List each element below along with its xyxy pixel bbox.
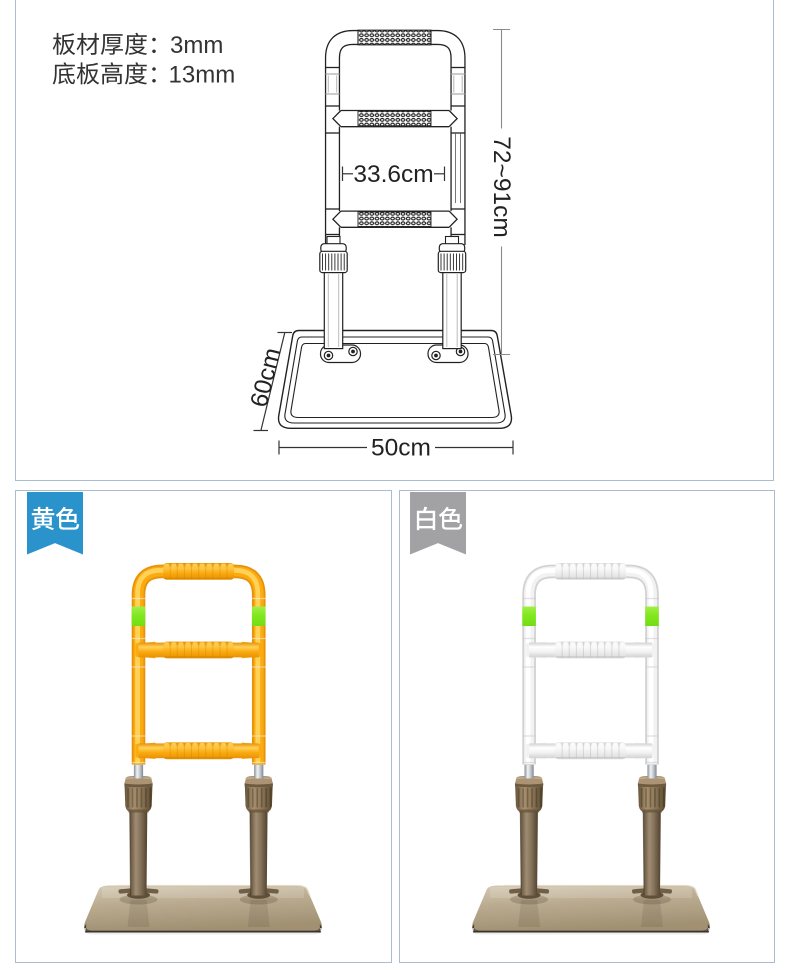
- svg-text:3mm: 3mm: [170, 32, 223, 59]
- svg-text:50cm: 50cm: [371, 435, 431, 462]
- svg-text:60cm: 60cm: [246, 345, 287, 410]
- svg-text:72~91cm: 72~91cm: [488, 136, 515, 237]
- svg-text:13mm: 13mm: [169, 62, 236, 89]
- svg-text:33.6cm: 33.6cm: [353, 161, 433, 188]
